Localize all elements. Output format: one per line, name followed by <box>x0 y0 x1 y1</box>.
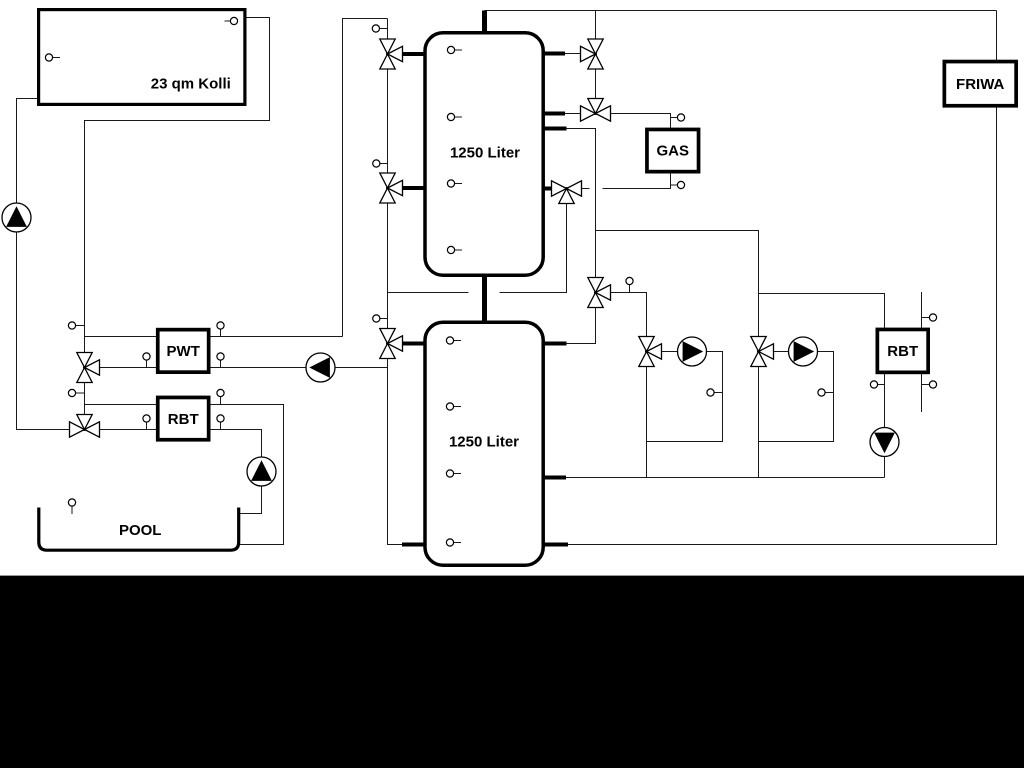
svg-text:RBT: RBT <box>887 343 918 360</box>
svg-text:GAS: GAS <box>656 143 689 160</box>
svg-text:1250 Liter: 1250 Liter <box>449 434 519 451</box>
svg-text:23 qm Kolli: 23 qm Kolli <box>151 76 231 93</box>
svg-text:FRIWA: FRIWA <box>956 76 1004 93</box>
svg-text:1250 Liter: 1250 Liter <box>450 144 520 161</box>
svg-text:PWT: PWT <box>167 343 200 360</box>
svg-text:RBT: RBT <box>168 411 199 428</box>
svg-text:POOL: POOL <box>119 522 162 539</box>
